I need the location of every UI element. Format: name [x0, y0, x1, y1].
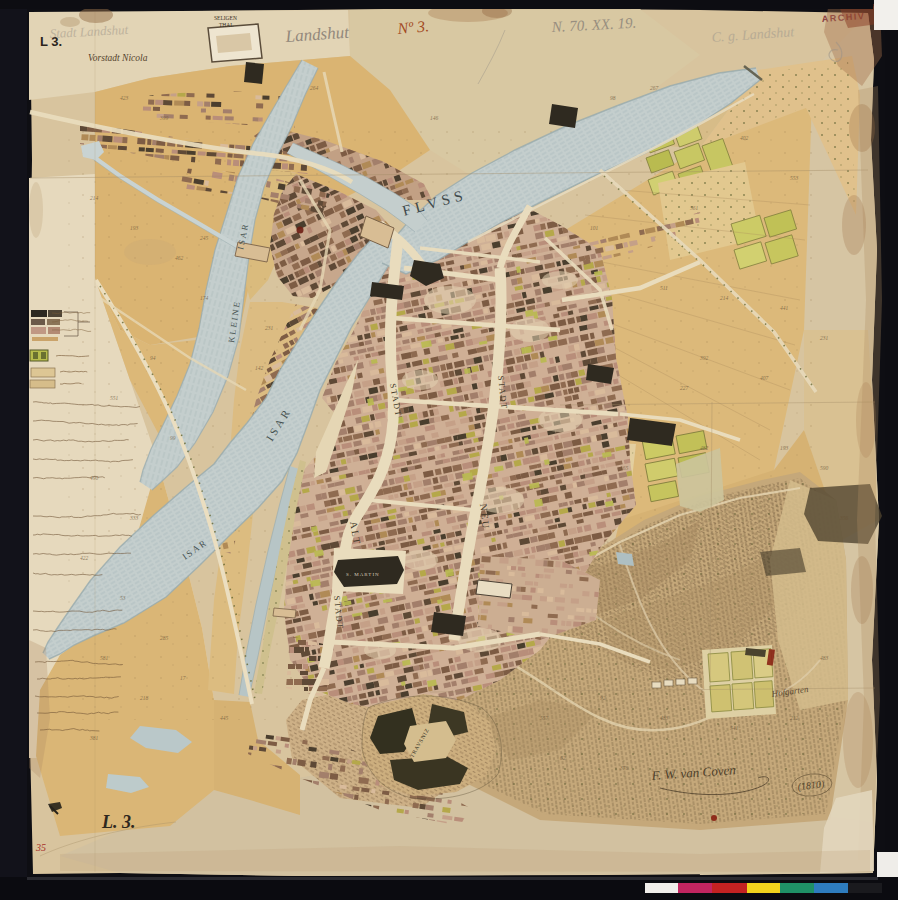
svg-text:62: 62 [560, 755, 566, 761]
svg-text:483: 483 [820, 655, 829, 661]
svg-text:407: 407 [760, 375, 769, 381]
svg-text:227: 227 [680, 385, 689, 391]
svg-text:541: 541 [730, 725, 739, 731]
svg-text:482: 482 [700, 445, 709, 451]
svg-text:193: 193 [130, 225, 139, 231]
svg-text:557: 557 [540, 715, 549, 721]
svg-text:445: 445 [220, 715, 229, 721]
svg-text:441: 441 [780, 305, 789, 311]
svg-text:376: 376 [619, 765, 629, 771]
svg-text:399: 399 [159, 115, 169, 121]
svg-text:212: 212 [790, 715, 799, 721]
svg-text:174: 174 [200, 295, 209, 301]
svg-text:381: 381 [89, 735, 99, 741]
svg-text:267: 267 [650, 85, 659, 91]
svg-text:98: 98 [610, 95, 616, 101]
svg-text:356: 356 [839, 515, 849, 521]
svg-text:561: 561 [690, 205, 699, 211]
svg-text:53: 53 [120, 595, 126, 601]
svg-text:245: 245 [200, 235, 209, 241]
svg-text:214: 214 [90, 195, 99, 201]
svg-text:94: 94 [150, 355, 156, 361]
svg-text:402: 402 [740, 135, 749, 141]
svg-text:SELIGEN: SELIGEN [214, 15, 237, 21]
svg-text:193: 193 [780, 445, 789, 451]
svg-text:333: 333 [129, 515, 139, 521]
svg-text:231: 231 [265, 325, 274, 331]
svg-text:99: 99 [170, 435, 176, 441]
svg-text:101: 101 [590, 225, 599, 231]
svg-text:214: 214 [720, 295, 729, 301]
svg-text:35: 35 [35, 842, 46, 853]
svg-text:285: 285 [160, 635, 169, 641]
svg-text:490: 490 [90, 475, 99, 481]
svg-text:422: 422 [80, 555, 89, 561]
svg-text:142: 142 [255, 365, 264, 371]
svg-text:231: 231 [820, 335, 829, 341]
svg-text:553: 553 [790, 175, 799, 181]
svg-text:L. 3.: L. 3. [101, 812, 136, 832]
svg-text:483: 483 [660, 715, 669, 721]
svg-text:THAL: THAL [219, 22, 234, 28]
svg-text:Vorstadt Nicola: Vorstadt Nicola [88, 53, 148, 63]
svg-text:S. MARTIN: S. MARTIN [346, 572, 380, 577]
svg-text:423: 423 [120, 95, 129, 101]
svg-text:392: 392 [699, 355, 709, 361]
svg-text:462: 462 [175, 255, 184, 261]
svg-text:17: 17 [180, 675, 186, 681]
svg-text:511: 511 [660, 285, 668, 291]
svg-text:551: 551 [110, 395, 119, 401]
svg-text:590: 590 [820, 465, 829, 471]
svg-text:92: 92 [600, 695, 606, 701]
svg-text:Nº 3.: Nº 3. [396, 17, 430, 37]
svg-text:165: 165 [620, 465, 629, 471]
svg-text:218: 218 [140, 695, 149, 701]
svg-text:264: 264 [310, 85, 319, 91]
svg-text:146: 146 [430, 115, 439, 121]
svg-text:581: 581 [100, 655, 109, 661]
